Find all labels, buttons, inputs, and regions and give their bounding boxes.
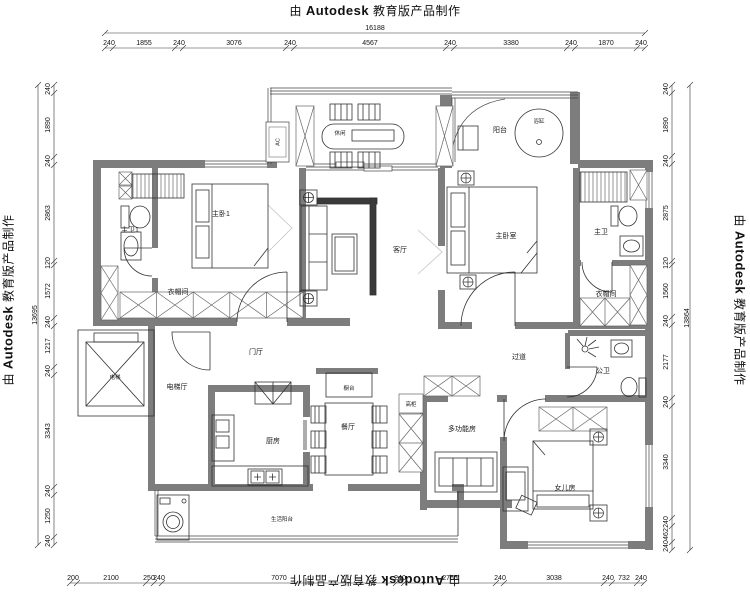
dim-label: 1250 [45,508,52,524]
room-label-dining: 餐厅 [341,422,355,431]
dim-label: 240 [45,155,52,167]
floor-plan-drawing: 主卫1 主卧1 衣帽间 休闲 客厅 阳台 浴缸 主卧室 主卫 衣帽间 门厅 过道… [0,0,750,600]
room-label-master-bedroom: 主卧室 [496,231,517,240]
round-bathtub [515,109,563,157]
entry-door [172,332,210,370]
dim-label: 240 [663,155,670,167]
room-label-master-bath: 主卫 [594,227,608,236]
dim-label: 240 [444,40,456,47]
dim-label: 200 [67,575,79,582]
cooktop [212,415,234,461]
dim-label: 3343 [45,423,52,439]
dim-label: 240 [565,40,577,47]
dim-label: 240 [45,535,52,547]
room-label-bathtub: 浴缸 [533,117,545,125]
cloakroom-left-closet [120,292,303,318]
sink [121,232,141,260]
shower-head [577,337,599,357]
kitchen-slider [304,420,306,450]
tall-cabinet-hatch [399,414,423,472]
room-label-public-bath: 公卫 [596,367,610,375]
dim-total-top: 16188 [365,25,385,32]
sideboard [326,373,372,397]
dim-label: 1870 [598,40,614,47]
dim-label: 240 [103,40,115,47]
dim-label: 240 [173,40,185,47]
dim-label: 240 [45,485,52,497]
light-symbol [594,508,604,518]
room-label-multi-function: 多功能房 [448,424,476,433]
bench-sofa [435,452,497,492]
dining-chairs [311,406,387,473]
dim-label: 240 [663,396,670,408]
room-label-kitchen: 厨房 [266,436,280,445]
dim-label: 240 [663,516,670,528]
tv-feature-wall [317,198,377,204]
room-label-daughter: 女儿房 [555,483,576,492]
dim-label: 4567 [362,40,378,47]
dim-label: 732 [618,575,630,582]
dim-total-right: 13864 [684,308,691,328]
dim-label: 1572 [45,283,52,299]
dim-label: 3076 [226,40,242,47]
room-label-master-bedroom-1: 主卧1 [212,209,230,218]
light-symbol [463,277,473,287]
dim-label: 2863 [45,205,52,221]
dim-label: 240 [153,575,165,582]
dim-label: 240 [394,575,406,582]
dim-label: 7070 [271,575,287,582]
sink [620,236,643,256]
dim-label: 2100 [103,575,119,582]
dim-label: 1890 [663,117,670,133]
pier-hatch-left [296,106,314,166]
dim-total-left: 13695 [32,305,39,325]
balcony-chair [458,126,478,150]
closet-left-column [101,266,118,320]
dim-label: 2177 [663,354,670,370]
master-bath-door [582,262,612,292]
toilet [621,378,646,398]
room-label-cloakroom-left: 衣帽间 [168,287,189,296]
dim-label: 240 [635,40,647,47]
room-label-elevator: 电梯 [109,373,121,381]
pier-hatch-right [436,106,453,166]
dim-label: 462 [663,528,670,540]
bath1-door [124,248,152,276]
room-label-cloakroom-right: 衣帽间 [596,289,617,298]
washing-machine [157,495,189,540]
toilet [121,206,150,228]
room-label-hallway: 过道 [512,352,526,361]
dim-label: 240 [284,40,296,47]
bed-1 [192,184,268,268]
master-bed [447,187,537,273]
cloakroom-right-closet [580,298,630,326]
toilet [611,206,637,226]
double-sink [248,469,282,485]
room-label-living-room: 客厅 [393,245,407,254]
room-label-tall-cabinet: 高柜 [405,400,417,408]
dim-label: 1890 [45,117,52,133]
light-symbol [461,173,471,183]
sink [611,340,632,357]
hallway-cabinet [424,376,480,396]
dim-label: 240 [663,83,670,95]
shower-tub [132,174,184,198]
master-bedroom-door [461,272,515,326]
light-symbol [594,432,604,442]
dim-label: 3038 [546,575,562,582]
dim-label: 2765 [442,575,458,582]
dim-label: 240 [663,540,670,552]
room-label-foyer: 门厅 [249,347,263,356]
corner-hatch-topright [630,170,647,200]
room-label-master-bath-1: 主卫1 [121,225,139,234]
dim-label: 240 [494,575,506,582]
plan-mark [268,205,292,252]
floor-plan-page: 由 Autodesk 教育版产品制作 由 Autodesk 教育版产品制作 由 … [0,0,750,600]
dim-label: 240 [602,575,614,582]
dim-label: 1217 [45,338,52,354]
coffee-table [332,234,357,274]
room-label-counter: 橱台 [343,384,355,392]
room-label-balcony: 阳台 [493,125,507,134]
walls [93,92,653,550]
dim-label: 1855 [136,40,152,47]
dim-label: 240 [45,83,52,95]
room-label-service-balcony: 生活阳台 [271,515,294,523]
public-bath-door [567,367,597,397]
dim-label: 120 [45,257,52,269]
dim-label: 240 [635,575,647,582]
dim-label: 240 [45,316,52,328]
desk-chair [516,495,537,515]
cloakroom-right-column [630,265,647,325]
dim-label: 3380 [503,40,519,47]
bathtub-right [580,172,627,202]
dim-label: 240 [45,365,52,377]
dim-label: 3340 [663,454,670,470]
ac-label: AC [276,138,282,146]
dim-label: 240 [663,315,670,327]
dim-label: 2875 [663,205,670,221]
dim-label: 1560 [663,283,670,299]
bath1-corner-hatch [119,172,132,199]
daughter-bed [533,441,593,509]
dining-table [325,403,373,475]
dim-label: 120 [663,257,670,269]
daughter-closet [539,407,607,431]
room-label-elevator-hall: 电梯厅 [167,382,188,391]
room-label-leisure: 休闲 [334,129,346,137]
